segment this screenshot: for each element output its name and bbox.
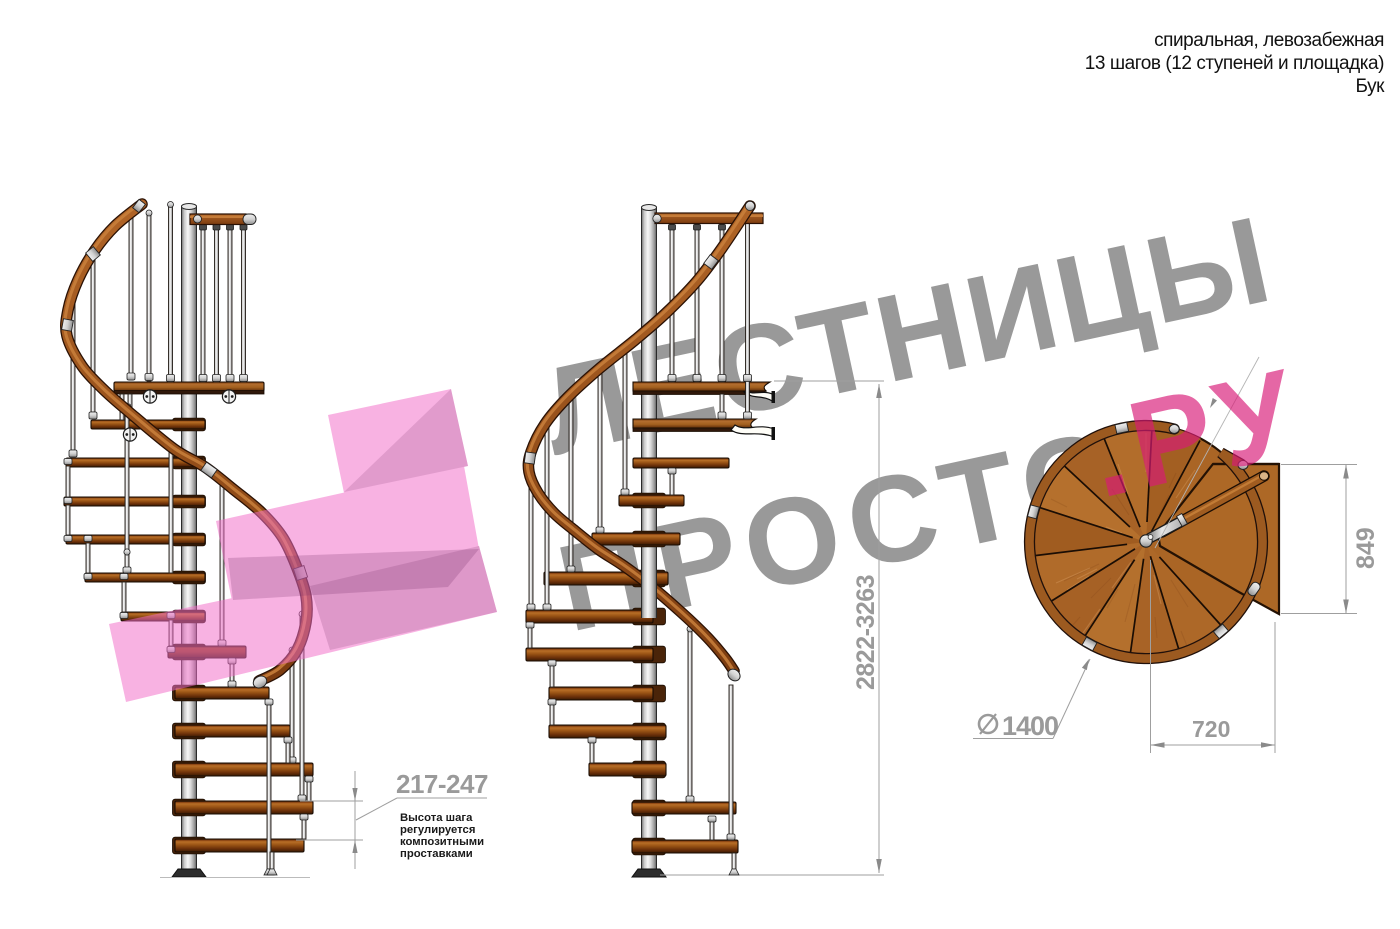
svg-text:720: 720 [1192,716,1230,742]
svg-text:217-247: 217-247 [396,769,488,799]
svg-text:Высота шага: Высота шага [400,812,473,824]
svg-text:13 шагов (12 ступеней и площад: 13 шагов (12 ступеней и площадка) [1085,53,1384,74]
svg-text:2822-3263: 2822-3263 [852,575,880,690]
svg-text:1400: 1400 [1002,711,1058,741]
svg-text:Бук: Бук [1355,76,1385,97]
svg-text:спиральная, левозабежная: спиральная, левозабежная [1154,30,1384,51]
svg-text:регулируется: регулируется [400,824,475,836]
svg-text:849: 849 [1352,527,1380,569]
svg-text:композитными: композитными [400,836,484,848]
svg-text:проставками: проставками [400,848,473,860]
